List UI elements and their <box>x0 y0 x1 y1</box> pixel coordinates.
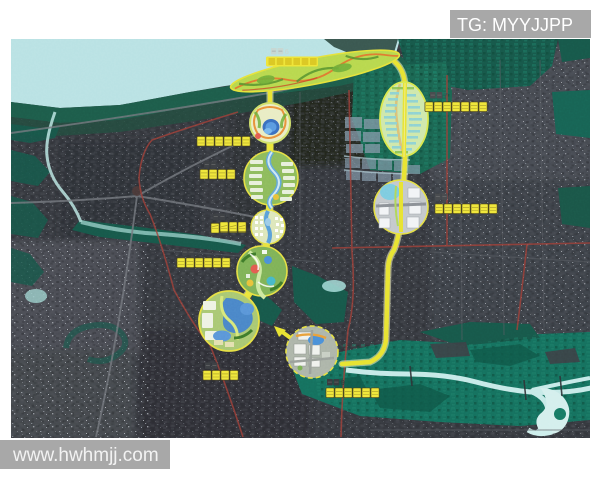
svg-text:TG: MYYJJPP: TG: MYYJJPP <box>457 15 573 35</box>
svg-text:5: 5 <box>212 126 216 135</box>
svg-text:3: 3 <box>227 213 231 222</box>
svg-text:7: 7 <box>444 91 448 100</box>
svg-text:8: 8 <box>449 193 453 202</box>
svg-text:4: 4 <box>218 161 222 170</box>
svg-text:6: 6 <box>285 47 289 56</box>
svg-text:9: 9 <box>341 378 345 387</box>
svg-text:2: 2 <box>196 248 200 257</box>
svg-text:www.hwhmjj.com: www.hwhmjj.com <box>12 445 159 466</box>
svg-text:1: 1 <box>219 362 223 371</box>
